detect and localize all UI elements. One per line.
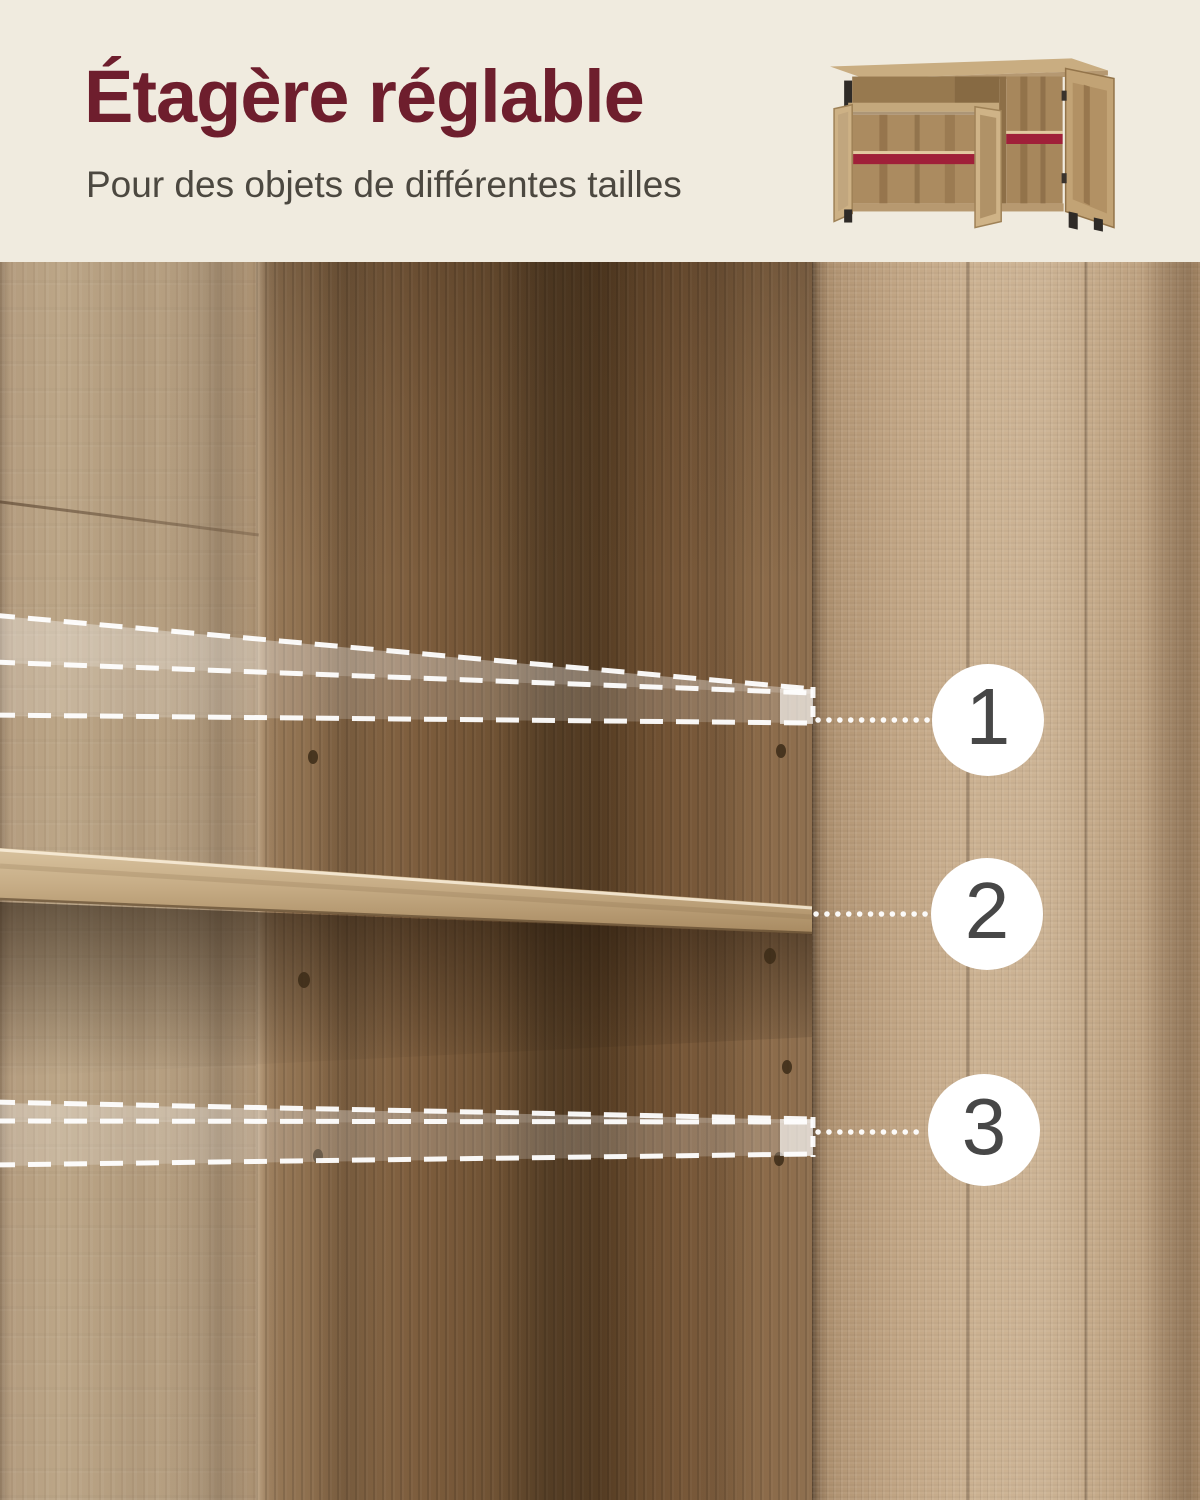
shelf-position-outline-3 xyxy=(0,1102,813,1166)
marker-2-label: 2 xyxy=(965,871,1010,951)
shelf-position-outline-1 xyxy=(0,615,813,725)
product-cabinet-thumbnail-icon xyxy=(824,44,1118,246)
page-subtitle: Pour des objets de différentes tailles xyxy=(86,164,682,207)
page-title: Étagère réglable xyxy=(84,56,644,137)
product-infographic: Étagère réglable Pour des objets de diff… xyxy=(0,0,1200,1500)
position-marker-2: 2 xyxy=(931,858,1043,970)
marker-1-label: 1 xyxy=(966,677,1011,757)
leader-lines xyxy=(816,720,929,1132)
marker-3-label: 3 xyxy=(962,1087,1007,1167)
cabinet-interior-photo: 1 2 3 xyxy=(0,262,1200,1500)
header-band: Étagère réglable Pour des objets de diff… xyxy=(0,0,1200,262)
position-marker-1: 1 xyxy=(932,664,1044,776)
position-marker-3: 3 xyxy=(928,1074,1040,1186)
